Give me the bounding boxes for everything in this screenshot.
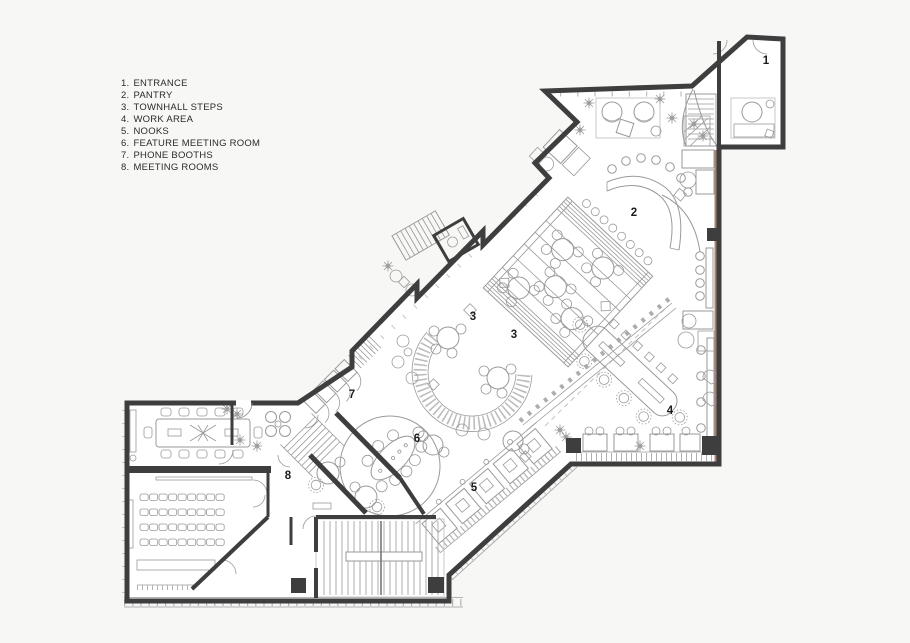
legend-item-number: 3. xyxy=(121,102,129,113)
legend-item-number: 4. xyxy=(121,114,129,125)
floor-plan-page: 123345678 1.ENTRANCE2.PANTRY3.TOWNHALL S… xyxy=(0,0,910,643)
legend-item-number: 8. xyxy=(121,162,129,173)
room-label-2: 2 xyxy=(631,207,637,219)
legend-item-number: 2. xyxy=(121,90,129,101)
room-label-1: 1 xyxy=(763,55,770,67)
room-label-6: 6 xyxy=(414,433,420,445)
legend-item-number: 1. xyxy=(121,78,129,89)
legend: 1.ENTRANCE2.PANTRY3.TOWNHALL STEPS4.WORK… xyxy=(121,78,260,174)
legend-item-label: NOOKS xyxy=(133,126,169,137)
room-label-3: 3 xyxy=(511,329,517,341)
room-label-3: 3 xyxy=(470,311,476,323)
legend-item: 3.TOWNHALL STEPS xyxy=(121,102,260,114)
legend-item-label: TOWNHALL STEPS xyxy=(133,102,223,113)
legend-item-label: PANTRY xyxy=(133,90,172,101)
room-label-8: 8 xyxy=(285,470,292,482)
legend-item: 1.ENTRANCE xyxy=(121,78,260,90)
legend-item-number: 7. xyxy=(121,150,129,161)
door-gap xyxy=(236,400,251,406)
legend-item: 2.PANTRY xyxy=(121,90,260,102)
room-label-4: 4 xyxy=(667,405,674,417)
legend-item: 5.NOOKS xyxy=(121,126,260,138)
legend-item-label: FEATURE MEETING ROOM xyxy=(133,138,260,149)
legend-item-label: ENTRANCE xyxy=(133,78,187,89)
legend-item-label: PHONE BOOTHS xyxy=(133,150,213,161)
room-label-5: 5 xyxy=(471,482,478,494)
room-label-7: 7 xyxy=(349,389,355,401)
legend-item-label: MEETING ROOMS xyxy=(133,162,218,173)
stair-upper xyxy=(392,211,449,260)
legend-item: 6.FEATURE MEETING ROOM xyxy=(121,138,260,150)
legend-item: 8.MEETING ROOMS xyxy=(121,162,260,174)
legend-item-label: WORK AREA xyxy=(133,114,193,125)
legend-item-number: 6. xyxy=(121,138,129,149)
legend-item: 7.PHONE BOOTHS xyxy=(121,150,260,162)
legend-item: 4.WORK AREA xyxy=(121,114,260,126)
legend-item-number: 5. xyxy=(121,126,129,137)
